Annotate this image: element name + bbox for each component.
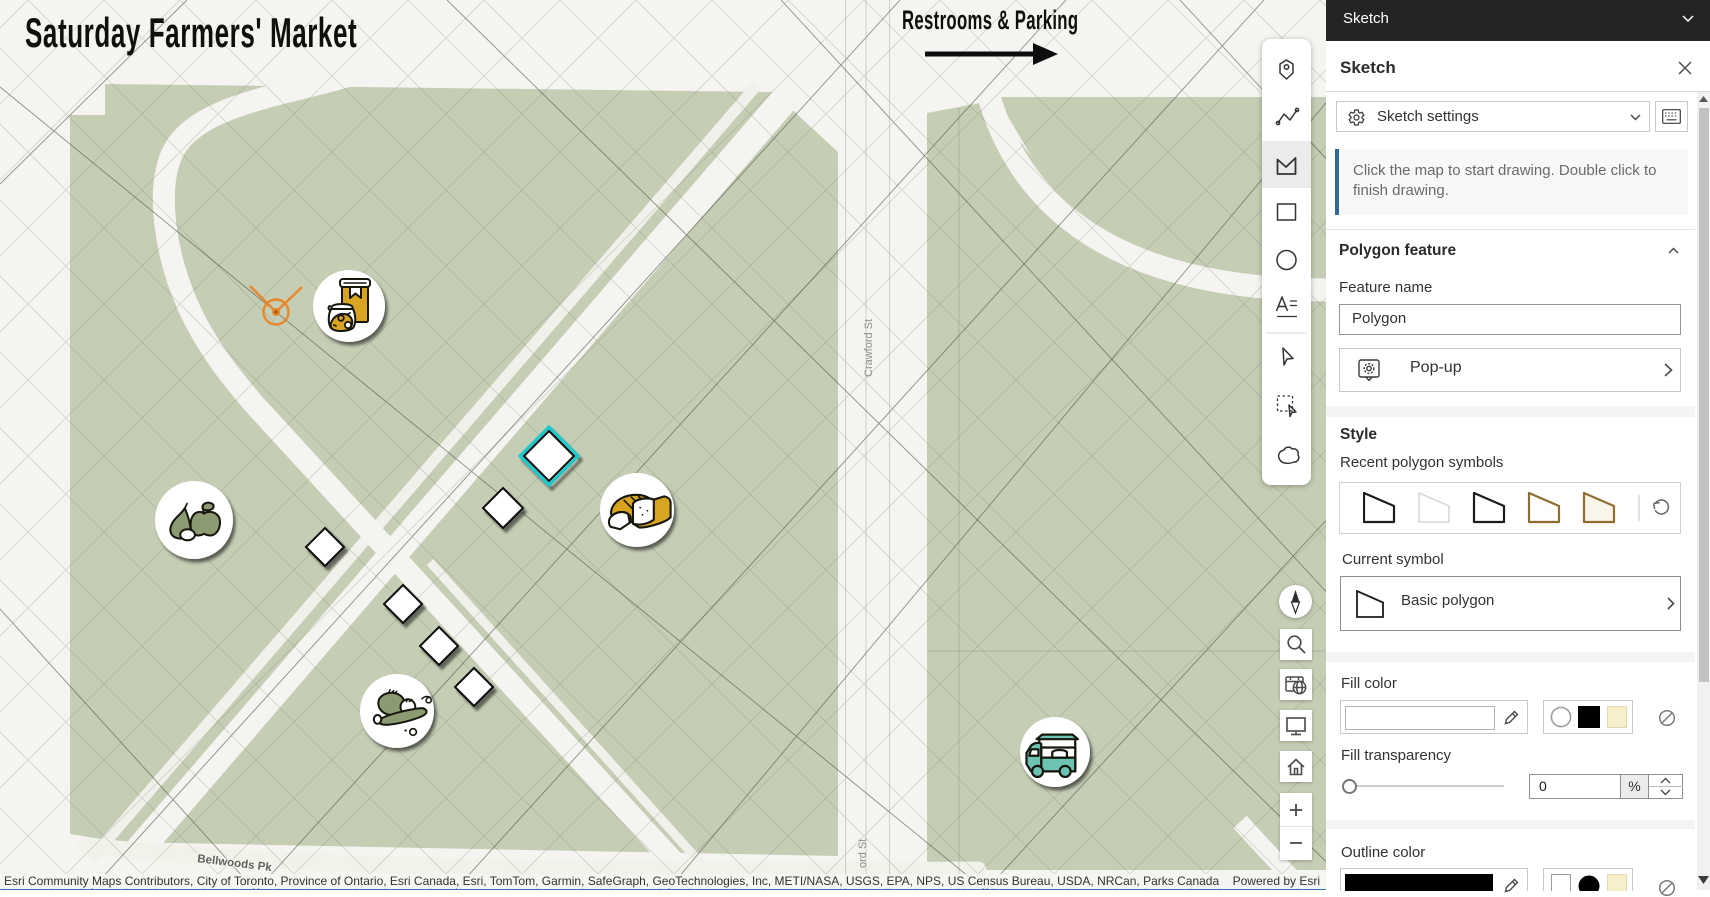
svg-text:Crawford St: Crawford St [863,319,875,377]
svg-text:Saturday Farmers' Market: Saturday Farmers' Market [25,10,357,57]
svg-text:Restrooms & Parking: Restrooms & Parking [902,5,1078,35]
svg-text:ord St: ord St [857,839,869,868]
